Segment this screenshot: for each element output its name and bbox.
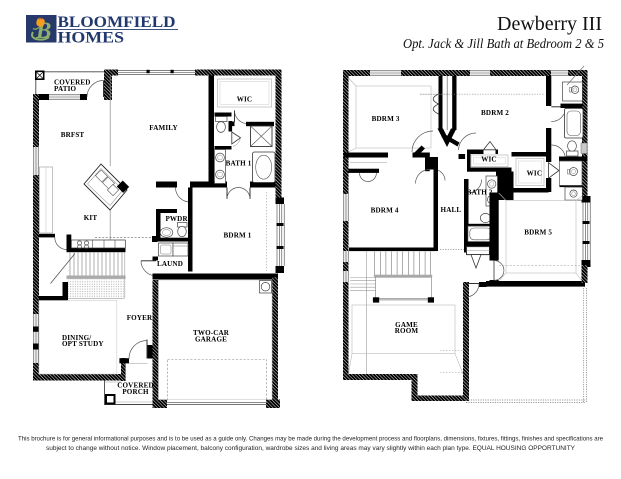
svg-text:BATH 1: BATH 1 — [226, 160, 252, 168]
svg-text:This brochure is for general i: This brochure is for general information… — [18, 436, 603, 443]
svg-text:HALL: HALL — [441, 206, 462, 214]
svg-text:WIC: WIC — [527, 170, 542, 178]
svg-text:FAMILY: FAMILY — [149, 124, 178, 132]
svg-text:subject to change without noti: subject to change without notice. Window… — [46, 445, 576, 452]
svg-text:Dewberry III: Dewberry III — [497, 13, 602, 35]
svg-text:PATIO: PATIO — [54, 85, 76, 93]
svg-text:BRFST: BRFST — [61, 131, 85, 139]
svg-text:ROOM: ROOM — [395, 327, 419, 335]
svg-text:BDRM 2: BDRM 2 — [481, 109, 509, 117]
svg-text:BDRM 4: BDRM 4 — [371, 207, 399, 215]
svg-text:BATH 2: BATH 2 — [467, 189, 493, 197]
svg-text:OPT STUDY: OPT STUDY — [62, 340, 104, 348]
svg-text:FOYER: FOYER — [127, 314, 153, 322]
svg-text:BDRM 5: BDRM 5 — [524, 229, 552, 237]
svg-text:LAUND: LAUND — [157, 260, 183, 268]
svg-text:BDRM 3: BDRM 3 — [372, 115, 400, 123]
svg-text:HOMES: HOMES — [58, 29, 125, 46]
svg-text:Opt. Jack & Jill Bath at Bedro: Opt. Jack & Jill Bath at Bedroom 2 & 5 — [403, 37, 604, 52]
svg-text:KIT: KIT — [84, 214, 98, 222]
svg-text:BLOOMFIELD: BLOOMFIELD — [58, 14, 176, 31]
svg-text:WIC: WIC — [481, 155, 496, 163]
svg-text:GARAGE: GARAGE — [195, 336, 227, 344]
svg-text:PWDR: PWDR — [165, 215, 188, 223]
svg-text:WIC: WIC — [237, 95, 252, 103]
svg-text:BDRM 1: BDRM 1 — [224, 231, 252, 239]
svg-text:PORCH: PORCH — [122, 388, 149, 396]
